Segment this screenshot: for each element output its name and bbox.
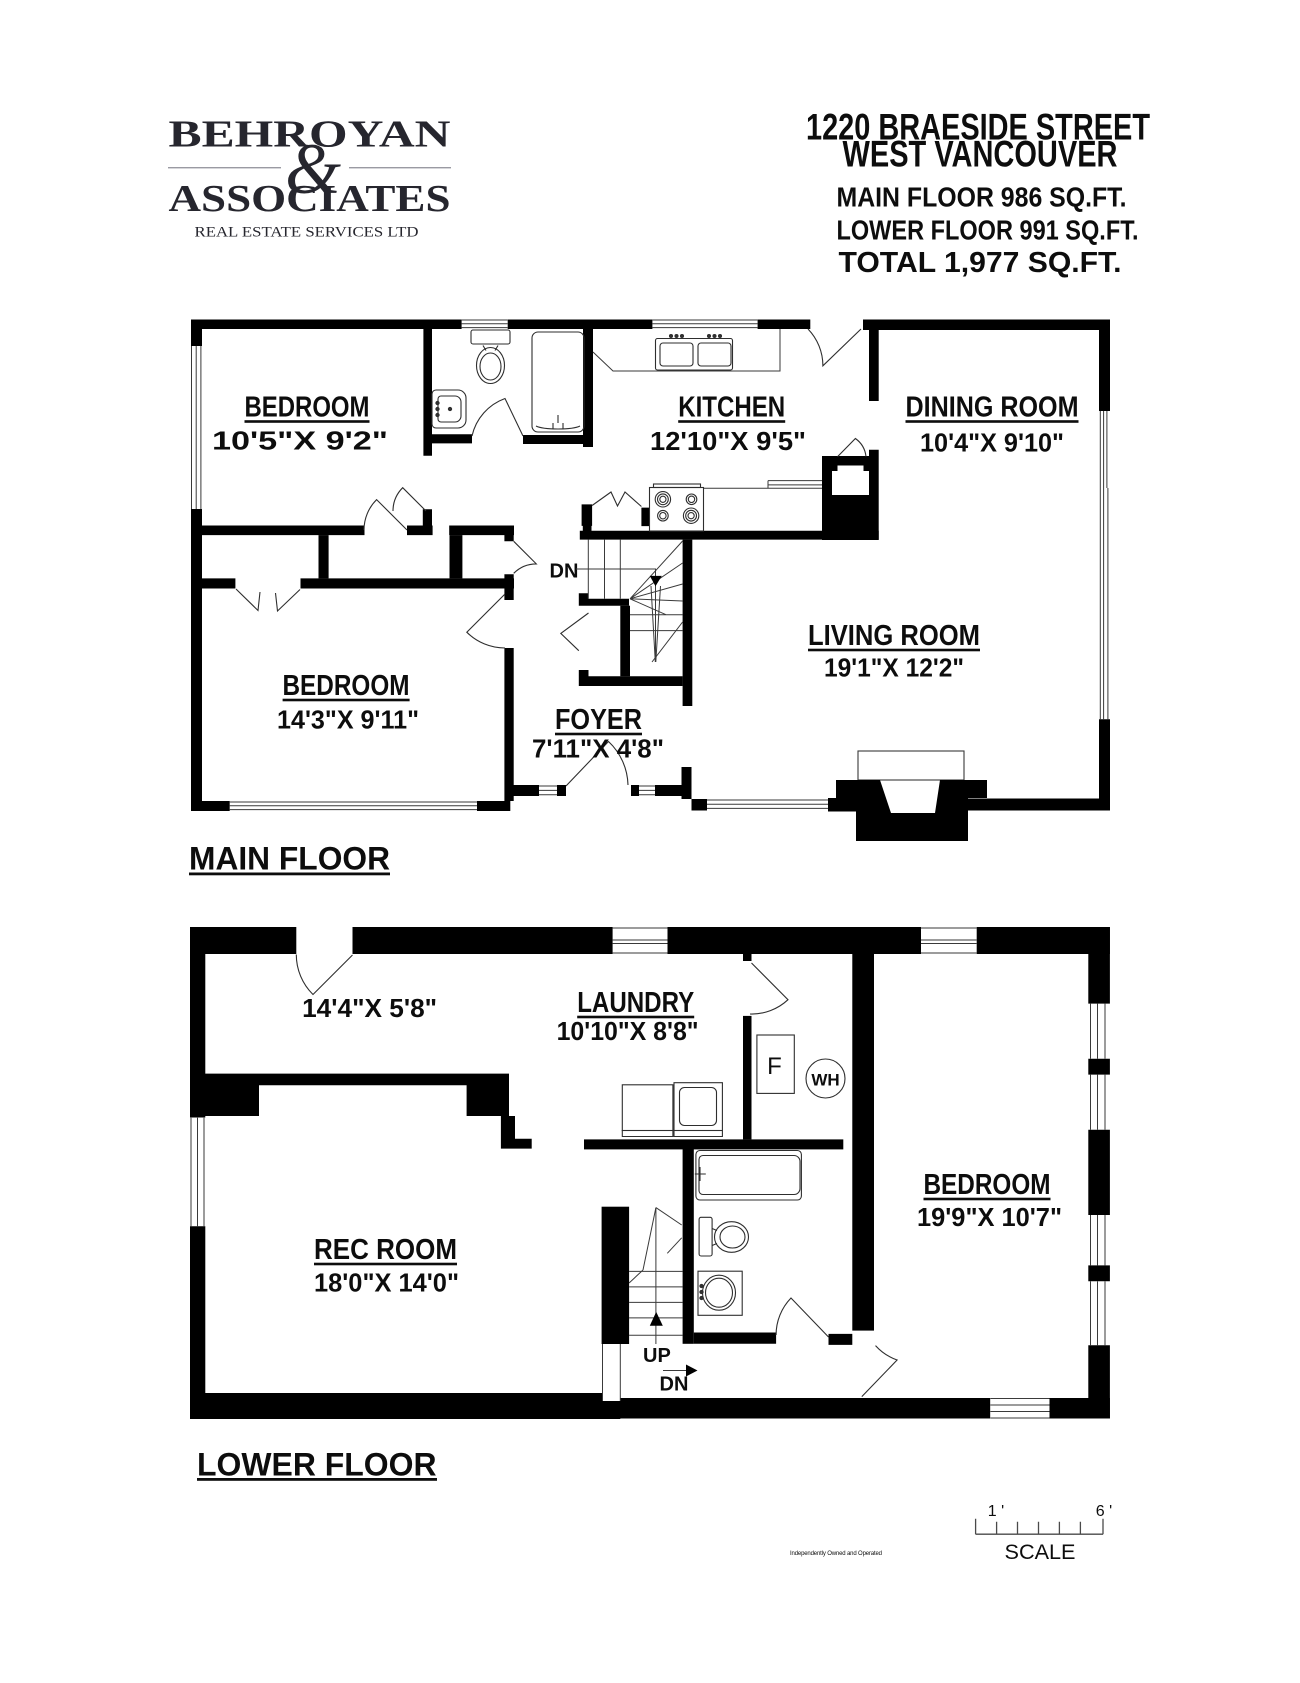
svg-text:WH: WH (811, 1071, 839, 1090)
svg-text:BEDROOM: BEDROOM (245, 392, 370, 424)
svg-text:BEDROOM: BEDROOM (283, 670, 410, 702)
svg-text:WEST VANCOUVER: WEST VANCOUVER (843, 134, 1118, 175)
svg-text:19'1"X 12'2": 19'1"X 12'2" (824, 653, 964, 683)
svg-text:10'5"X 9'2": 10'5"X 9'2" (212, 426, 388, 456)
svg-text:DN: DN (660, 1374, 689, 1396)
svg-text:MAIN FLOOR 986 SQ.FT.: MAIN FLOOR 986 SQ.FT. (837, 182, 1127, 213)
svg-text:10'10"X 8'8": 10'10"X 8'8" (557, 1016, 699, 1046)
svg-text:REAL ESTATE SERVICES LTD: REAL ESTATE SERVICES LTD (195, 225, 419, 241)
svg-text:10'4"X 9'10": 10'4"X 9'10" (920, 428, 1064, 458)
svg-text:14'4"X 5'8": 14'4"X 5'8" (302, 993, 437, 1023)
svg-text:LOWER FLOOR: LOWER FLOOR (197, 1447, 437, 1483)
svg-text:12'10"X 9'5": 12'10"X 9'5" (650, 426, 806, 456)
svg-text:TOTAL 1,977 SQ.FT.: TOTAL 1,977 SQ.FT. (839, 247, 1122, 279)
svg-text:ASSOCIATES: ASSOCIATES (169, 178, 451, 220)
svg-text:Independently Owned and Operat: Independently Owned and Operated (790, 1551, 882, 1557)
svg-text:LOWER FLOOR 991 SQ.FT.: LOWER FLOOR 991 SQ.FT. (837, 215, 1139, 246)
svg-text:UP: UP (643, 1345, 671, 1367)
svg-text:14'3"X 9'11": 14'3"X 9'11" (277, 705, 419, 735)
svg-text:LAUNDRY: LAUNDRY (577, 987, 694, 1019)
svg-text:6 ': 6 ' (1096, 1503, 1112, 1520)
svg-text:DINING ROOM: DINING ROOM (906, 392, 1079, 424)
svg-text:BEHROYAN: BEHROYAN (169, 114, 451, 156)
svg-text:REC ROOM: REC ROOM (314, 1234, 457, 1266)
svg-text:7'11"X 4'8": 7'11"X 4'8" (532, 734, 664, 764)
svg-text:LIVING ROOM: LIVING ROOM (808, 620, 980, 652)
svg-text:18'0"X 14'0": 18'0"X 14'0" (314, 1268, 459, 1298)
svg-text:FOYER: FOYER (555, 704, 642, 736)
svg-text:F: F (767, 1053, 782, 1080)
svg-text:1 ': 1 ' (988, 1503, 1004, 1520)
svg-text:DN: DN (550, 561, 579, 583)
svg-text:SCALE: SCALE (1005, 1541, 1076, 1564)
svg-text:MAIN FLOOR: MAIN FLOOR (189, 841, 390, 877)
svg-text:BEDROOM: BEDROOM (924, 1169, 1051, 1201)
svg-text:KITCHEN: KITCHEN (678, 392, 785, 424)
svg-text:19'9"X 10'7": 19'9"X 10'7" (917, 1202, 1062, 1232)
